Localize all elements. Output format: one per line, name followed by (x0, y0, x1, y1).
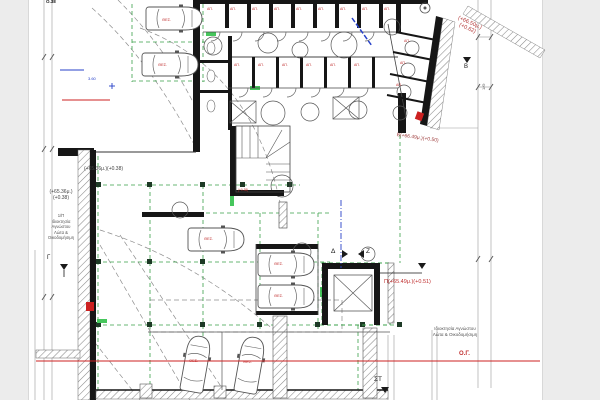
top-cut-label: Ο.38 (46, 0, 56, 4)
elevator-shaft (322, 263, 394, 325)
svg-text:(+0.38): (+0.38) (238, 188, 248, 192)
svg-text:ΑΠ.: ΑΠ. (396, 83, 402, 87)
svg-text:ΘΕΣ.: ΘΕΣ. (243, 359, 252, 364)
svg-text:ΑΠ.: ΑΠ. (252, 7, 258, 11)
section-marker-b: Β (464, 64, 468, 70)
door-swing-circles (172, 19, 419, 261)
svg-text:ΑΠ.: ΑΠ. (384, 7, 390, 11)
dimension-lines (35, 0, 491, 400)
svg-text:ΘΕΣ.: ΘΕΣ. (204, 236, 213, 241)
svg-text:ΘΕΣ.: ΘΕΣ. (274, 261, 283, 266)
car (188, 226, 244, 254)
storage-rooms-row2 (198, 36, 398, 130)
svg-text:ΑΠ.: ΑΠ. (340, 7, 346, 11)
car (258, 251, 314, 279)
svg-text:ΑΠ.: ΑΠ. (207, 7, 213, 11)
car (177, 334, 214, 394)
floor-plan-page: ΑΠ.ΑΠ. ΑΠ.ΑΠ. ΑΠ.ΑΠ. ΑΠ.ΑΠ. ΑΠ. ΑΠ.ΑΠ. Α… (0, 0, 600, 400)
svg-text:ΘΕΣ.: ΘΕΣ. (158, 62, 167, 67)
left-property-block: 1/Π Ιδιοκτησία Αγνώστου Λώτα & Οικοδομήσ… (42, 213, 80, 241)
mid-level-label: Π(+65.49μ.)(+0.51) (384, 279, 431, 285)
svg-text:ΑΠ.: ΑΠ. (318, 7, 324, 11)
car (231, 335, 268, 395)
staircase (230, 126, 290, 196)
floor-plan-drawing: ΑΠ.ΑΠ. ΑΠ.ΑΠ. ΑΠ.ΑΠ. ΑΠ.ΑΠ. ΑΠ. ΑΠ.ΑΠ. Α… (0, 0, 600, 400)
room-labels: ΑΠ.ΑΠ. ΑΠ.ΑΠ. ΑΠ.ΑΠ. ΑΠ.ΑΠ. ΑΠ. ΑΠ.ΑΠ. Α… (207, 7, 410, 192)
svg-text:ΑΠ.: ΑΠ. (306, 63, 312, 67)
section-marker-g: Γ (47, 255, 50, 261)
svg-text:ΑΠ.: ΑΠ. (274, 7, 280, 11)
svg-text:ΑΠ.: ΑΠ. (354, 63, 360, 67)
svg-text:ΑΠ.: ΑΠ. (282, 63, 288, 67)
right-property-block: Ιδιοκτησία Αγνώστου Λώτα & Οικοδομήσιμη (412, 326, 498, 338)
section-marker-d: Δ (331, 248, 335, 255)
section-markers (60, 57, 471, 393)
blue-dim-text: 3.60 (88, 76, 97, 81)
inner-level-label: (+65.36μ.)(+0.38) (84, 166, 123, 172)
svg-text:ΑΠ.: ΑΠ. (404, 39, 410, 43)
svg-text:ΘΕΣ.: ΘΕΣ. (274, 293, 283, 298)
svg-text:ΘΕΣ.: ΘΕΣ. (189, 358, 198, 363)
building-line-label: Ο.Γ. (459, 351, 470, 357)
section-marker-z: Ζ (366, 248, 370, 255)
svg-text:ΑΠ.: ΑΠ. (234, 63, 240, 67)
green-doors (97, 32, 392, 323)
svg-text:ΑΠ.: ΑΠ. (362, 7, 368, 11)
dim-small-label: 1/Θ (481, 84, 486, 90)
svg-text:ΑΠ.: ΑΠ. (400, 61, 406, 65)
svg-text:ΑΠ.: ΑΠ. (330, 63, 336, 67)
svg-text:ΘΕΣ.: ΘΕΣ. (162, 17, 171, 22)
columns (96, 182, 402, 327)
car (146, 5, 202, 33)
left-level-label: (+65.36μ.) (+0.38) (42, 189, 80, 201)
svg-text:ΑΠ.: ΑΠ. (296, 7, 302, 11)
car (142, 51, 198, 79)
svg-text:ΑΠ.: ΑΠ. (258, 63, 264, 67)
svg-text:ΑΠ.: ΑΠ. (230, 7, 236, 11)
car (258, 283, 314, 311)
building-line-red (36, 100, 540, 361)
section-marker-st: ΣΤ (374, 376, 382, 383)
